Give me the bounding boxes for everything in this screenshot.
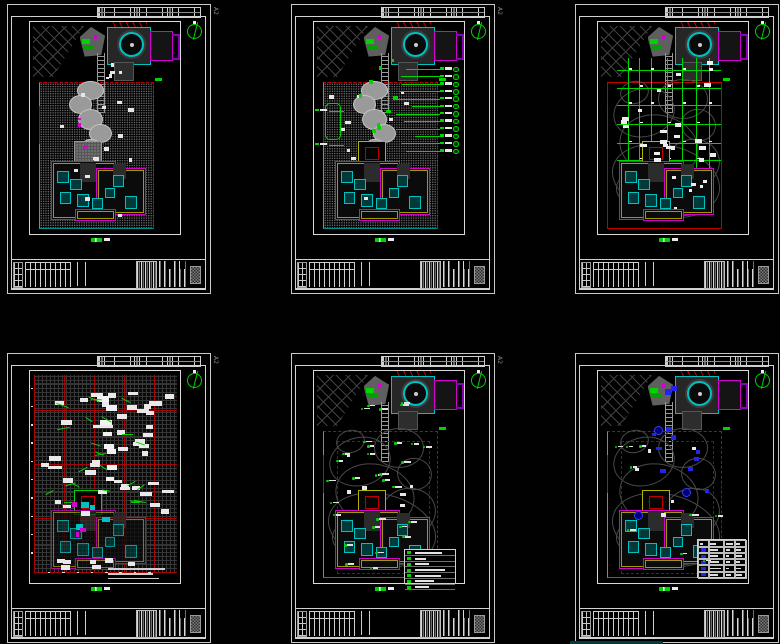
- title-block-bars: [443, 610, 471, 635]
- title-block: [295, 608, 490, 638]
- drawing-title-label: [659, 587, 678, 591]
- title-block-barcode: [136, 610, 157, 637]
- annotation-scatter: [30, 371, 181, 584]
- revision-table: [665, 7, 769, 18]
- revision-table: [97, 7, 201, 18]
- north-arrow-icon: [471, 373, 486, 388]
- drawing-sheet-paving-plan[interactable]: A2: [7, 4, 211, 294]
- title-block-barcode: [704, 261, 725, 288]
- drawing-sheet-dimension-grid-plan[interactable]: A2: [575, 4, 779, 294]
- title-block-bars: [159, 610, 187, 635]
- title-block-revision: [581, 262, 591, 288]
- title-block-stamp: [758, 615, 770, 632]
- title-block-table: [309, 611, 355, 636]
- annotation-scatter: [314, 22, 465, 235]
- revision-table: [381, 7, 485, 18]
- title-block: [579, 608, 774, 638]
- sheet-size-label: A2: [212, 7, 218, 15]
- drawing-title-label: [91, 238, 110, 242]
- drawing-sheet-lighting-plan[interactable]: A2: [575, 353, 779, 643]
- title-block-revision: [13, 611, 23, 637]
- title-block-barcode: [136, 261, 157, 288]
- title-block-bars: [727, 610, 755, 635]
- north-arrow-icon: [187, 24, 202, 39]
- title-block-bars: [443, 261, 471, 286]
- annotation-scatter: [30, 22, 181, 235]
- drawing-title-label: [375, 587, 394, 591]
- north-arrow-icon: [755, 373, 770, 388]
- drawing-title-label: [375, 238, 394, 242]
- title-block-table: [25, 611, 71, 636]
- annotation-scatter: [314, 371, 465, 584]
- title-block-columns: [77, 611, 93, 635]
- title-block-revision: [581, 611, 591, 637]
- title-block: [295, 259, 490, 289]
- title-block-stamp: [190, 615, 202, 632]
- title-block-columns: [77, 262, 93, 286]
- plan-area[interactable]: [29, 370, 182, 585]
- title-block: [11, 259, 206, 289]
- revision-table: [97, 356, 201, 367]
- title-block-stamp: [758, 266, 770, 283]
- title-block-table: [25, 262, 71, 287]
- title-block-barcode: [704, 610, 725, 637]
- drawing-title-label: [659, 238, 678, 242]
- title-block-table: [593, 262, 639, 287]
- sheet-size-label: A2: [212, 356, 218, 364]
- drawing-sheet-planting-plan[interactable]: A2: [291, 353, 495, 643]
- annotation-scatter: [598, 22, 749, 235]
- title-block: [11, 608, 206, 638]
- plan-area[interactable]: [313, 21, 466, 236]
- north-arrow-icon: [755, 24, 770, 39]
- plan-area[interactable]: [597, 21, 750, 236]
- drawing-sheet-setting-out-plan[interactable]: A2: [7, 353, 211, 643]
- plan-area[interactable]: [597, 370, 750, 585]
- title-block-revision: [297, 262, 307, 288]
- annotation-scatter: [598, 371, 749, 584]
- plan-area[interactable]: [29, 21, 182, 236]
- revision-table: [381, 356, 485, 367]
- title-block-table: [593, 611, 639, 636]
- north-arrow-icon: [471, 24, 486, 39]
- title-block-stamp: [474, 615, 486, 632]
- title-block-bars: [727, 261, 755, 286]
- title-block-bars: [159, 261, 187, 286]
- north-arrow-icon: [187, 373, 202, 388]
- drawing-title-label: [91, 587, 110, 591]
- title-block-columns: [361, 262, 377, 286]
- sheet-size-label: A2: [496, 356, 502, 364]
- drawing-sheet-paving-dimension-plan[interactable]: A2: [291, 4, 495, 294]
- title-block-stamp: [190, 266, 202, 283]
- cad-model-space[interactable]: A2: [0, 0, 780, 644]
- title-block-columns: [645, 262, 661, 286]
- plan-area[interactable]: [313, 370, 466, 585]
- title-block-table: [309, 262, 355, 287]
- sheet-size-label: A2: [496, 7, 502, 15]
- title-block-barcode: [420, 261, 441, 288]
- title-block-columns: [361, 611, 377, 635]
- title-block-revision: [297, 611, 307, 637]
- title-block-columns: [645, 611, 661, 635]
- title-block: [579, 259, 774, 289]
- title-block-revision: [13, 262, 23, 288]
- title-block-stamp: [474, 266, 486, 283]
- revision-table: [665, 356, 769, 367]
- title-block-barcode: [420, 610, 441, 637]
